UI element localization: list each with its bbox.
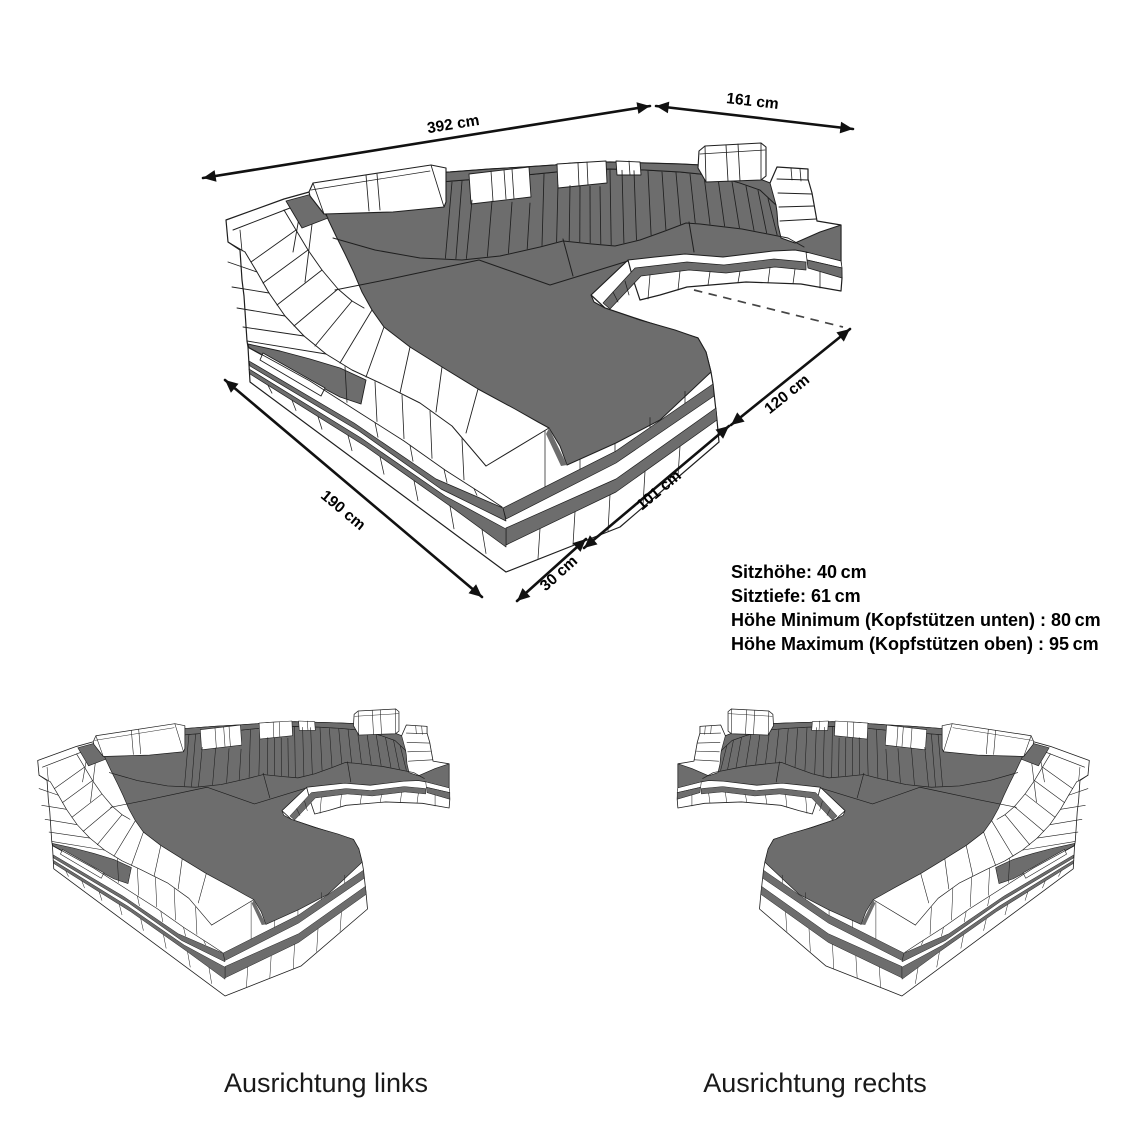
- svg-text:Ausrichtung rechts: Ausrichtung rechts: [703, 1068, 927, 1098]
- svg-text:Ausrichtung links: Ausrichtung links: [224, 1068, 428, 1098]
- svg-text:Höhe Maximum (Kopfstützen oben: Höhe Maximum (Kopfstützen oben) : 95 cm: [731, 634, 1099, 654]
- svg-text:Höhe Minimum (Kopfstützen unte: Höhe Minimum (Kopfstützen unten) : 80 cm: [731, 610, 1101, 630]
- svg-text:Sitztiefe: 61 cm: Sitztiefe: 61 cm: [731, 586, 861, 606]
- svg-text:Sitzhöhe: 40 cm: Sitzhöhe: 40 cm: [731, 562, 867, 582]
